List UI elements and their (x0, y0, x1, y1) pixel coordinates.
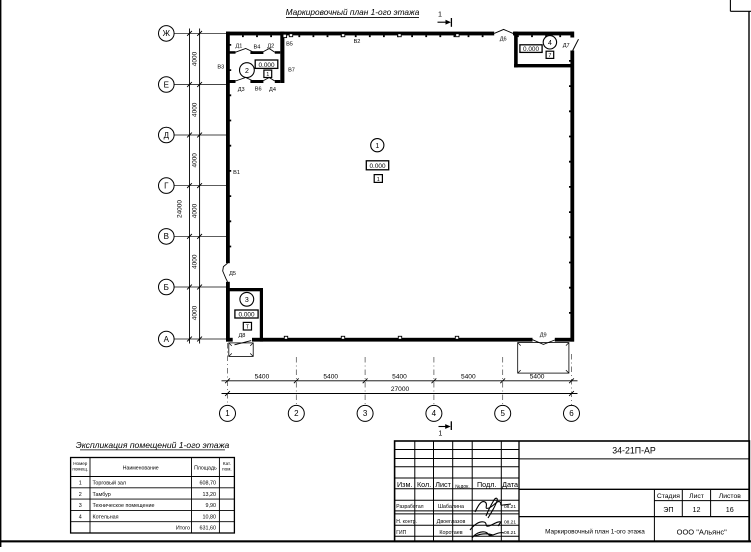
svg-text:помещ.: помещ. (72, 467, 88, 472)
svg-text:5: 5 (500, 409, 505, 418)
svg-text:6: 6 (569, 409, 574, 418)
svg-text:В1: В1 (233, 170, 240, 176)
svg-text:Тамбур: Тамбур (93, 492, 111, 498)
svg-text:1: 1 (266, 72, 269, 78)
svg-text:0.000: 0.000 (259, 62, 275, 69)
svg-text:Итого: Итого (176, 526, 190, 532)
svg-text:5400: 5400 (392, 373, 407, 380)
svg-text:1: 1 (438, 9, 442, 18)
svg-text:13,20: 13,20 (203, 492, 217, 498)
svg-text:3: 3 (245, 297, 249, 304)
svg-text:5400: 5400 (255, 373, 270, 380)
svg-text:Д7: Д7 (563, 43, 570, 49)
svg-text:Котельная: Котельная (93, 514, 119, 520)
svg-text:4: 4 (432, 409, 437, 418)
svg-text:7: 7 (548, 53, 551, 59)
svg-text:В4: В4 (253, 45, 260, 51)
svg-text:пом.: пом. (222, 467, 231, 472)
svg-text:Двоеглазов: Двоеглазов (437, 519, 466, 525)
svg-text:1: 1 (377, 177, 380, 183)
svg-text:В7: В7 (288, 68, 295, 74)
svg-text:А: А (164, 335, 170, 344)
svg-text:Лист: Лист (689, 493, 704, 500)
svg-text:4000: 4000 (192, 51, 199, 66)
svg-text:1: 1 (79, 481, 82, 487)
svg-text:4000: 4000 (192, 203, 199, 218)
svg-text:В6: В6 (255, 87, 262, 93)
svg-text:2: 2 (294, 409, 299, 418)
svg-text:4000: 4000 (192, 254, 199, 269)
svg-text:Наименование: Наименование (123, 465, 159, 471)
svg-text:4000: 4000 (192, 153, 199, 168)
svg-text:Маркировочный план 1-ого этажа: Маркировочный план 1-ого этажа (545, 528, 645, 536)
svg-text:Д9: Д9 (540, 332, 547, 338)
svg-text:Дата: Дата (502, 480, 518, 489)
svg-text:В5: В5 (286, 42, 293, 48)
svg-text:631,60: 631,60 (200, 526, 217, 532)
svg-text:В: В (164, 232, 169, 241)
svg-text:10,80: 10,80 (203, 514, 217, 520)
svg-text:3: 3 (79, 503, 82, 509)
svg-text:Д8: Д8 (238, 333, 245, 339)
svg-text:Д4: Д4 (269, 87, 276, 93)
svg-text:5400: 5400 (323, 373, 338, 380)
svg-text:0.000: 0.000 (370, 163, 386, 170)
svg-text:ООО "Альянс": ООО "Альянс" (677, 528, 727, 537)
svg-text:Маркировочный план 1-ого этажа: Маркировочный план 1-ого этажа (286, 7, 420, 17)
svg-text:Е: Е (164, 80, 169, 89)
svg-text:3: 3 (363, 409, 368, 418)
svg-text:Н. контр.: Н. контр. (396, 519, 417, 525)
svg-text:В3: В3 (217, 65, 224, 71)
svg-text:Шабалина: Шабалина (438, 504, 464, 510)
svg-text:Лист: Лист (435, 480, 451, 489)
svg-text:Кол.: Кол. (417, 480, 431, 489)
svg-text:1: 1 (438, 428, 442, 437)
svg-text:4: 4 (548, 40, 552, 47)
svg-text:24000: 24000 (177, 200, 184, 218)
svg-text:5400: 5400 (461, 373, 476, 380)
svg-text:Экспликация помещений 1-ого эт: Экспликация помещений 1-ого этажа (76, 440, 230, 450)
svg-text:Листов: Листов (719, 493, 741, 500)
svg-text:5400: 5400 (530, 373, 545, 380)
svg-text:0.000: 0.000 (239, 312, 255, 319)
svg-text:Торговый зал: Торговый зал (93, 480, 127, 487)
svg-text:2: 2 (245, 68, 249, 75)
svg-text:Г: Г (164, 181, 169, 190)
svg-text:Ж: Ж (163, 29, 171, 38)
svg-text:Д5: Д5 (229, 271, 236, 277)
svg-text:9,90: 9,90 (206, 503, 217, 509)
svg-text:Коротаев: Коротаев (439, 530, 462, 536)
svg-text:ЭП: ЭП (663, 505, 673, 514)
svg-text:12: 12 (693, 505, 701, 514)
svg-text:2: 2 (79, 492, 82, 498)
svg-text:Площадь: Площадь (194, 465, 217, 471)
svg-text:4000: 4000 (192, 102, 199, 117)
svg-text:Стадия: Стадия (657, 493, 680, 500)
svg-text:08.21: 08.21 (504, 530, 516, 536)
svg-text:Б: Б (164, 283, 169, 292)
svg-text:Техническое помещение: Техническое помещение (93, 503, 155, 509)
svg-text:№док.: №док. (455, 484, 470, 490)
svg-text:16: 16 (726, 505, 734, 514)
svg-text:Разработал: Разработал (396, 504, 423, 510)
svg-text:0.000: 0.000 (523, 46, 539, 53)
svg-text:1: 1 (375, 143, 379, 150)
svg-text:Д1: Д1 (235, 43, 242, 49)
svg-text:608,70: 608,70 (200, 481, 217, 487)
svg-text:4000: 4000 (192, 305, 199, 320)
svg-text:4: 4 (79, 514, 82, 520)
svg-text:Д2: Д2 (267, 43, 274, 49)
svg-text:08.21: 08.21 (504, 519, 516, 525)
svg-text:Д3: Д3 (238, 87, 245, 93)
svg-text:Д6: Д6 (500, 36, 507, 42)
svg-text:1: 1 (225, 409, 230, 418)
svg-text:34-21П-АР: 34-21П-АР (612, 446, 656, 456)
svg-text:Подл.: Подл. (477, 480, 496, 489)
svg-text:27000: 27000 (391, 386, 410, 393)
svg-text:Д: Д (164, 131, 170, 140)
svg-text:Изм.: Изм. (397, 480, 412, 489)
svg-text:Кат.: Кат. (223, 461, 231, 466)
svg-text:Номер: Номер (73, 461, 88, 466)
svg-text:ГИП: ГИП (396, 530, 406, 536)
svg-text:В2: В2 (354, 39, 361, 45)
